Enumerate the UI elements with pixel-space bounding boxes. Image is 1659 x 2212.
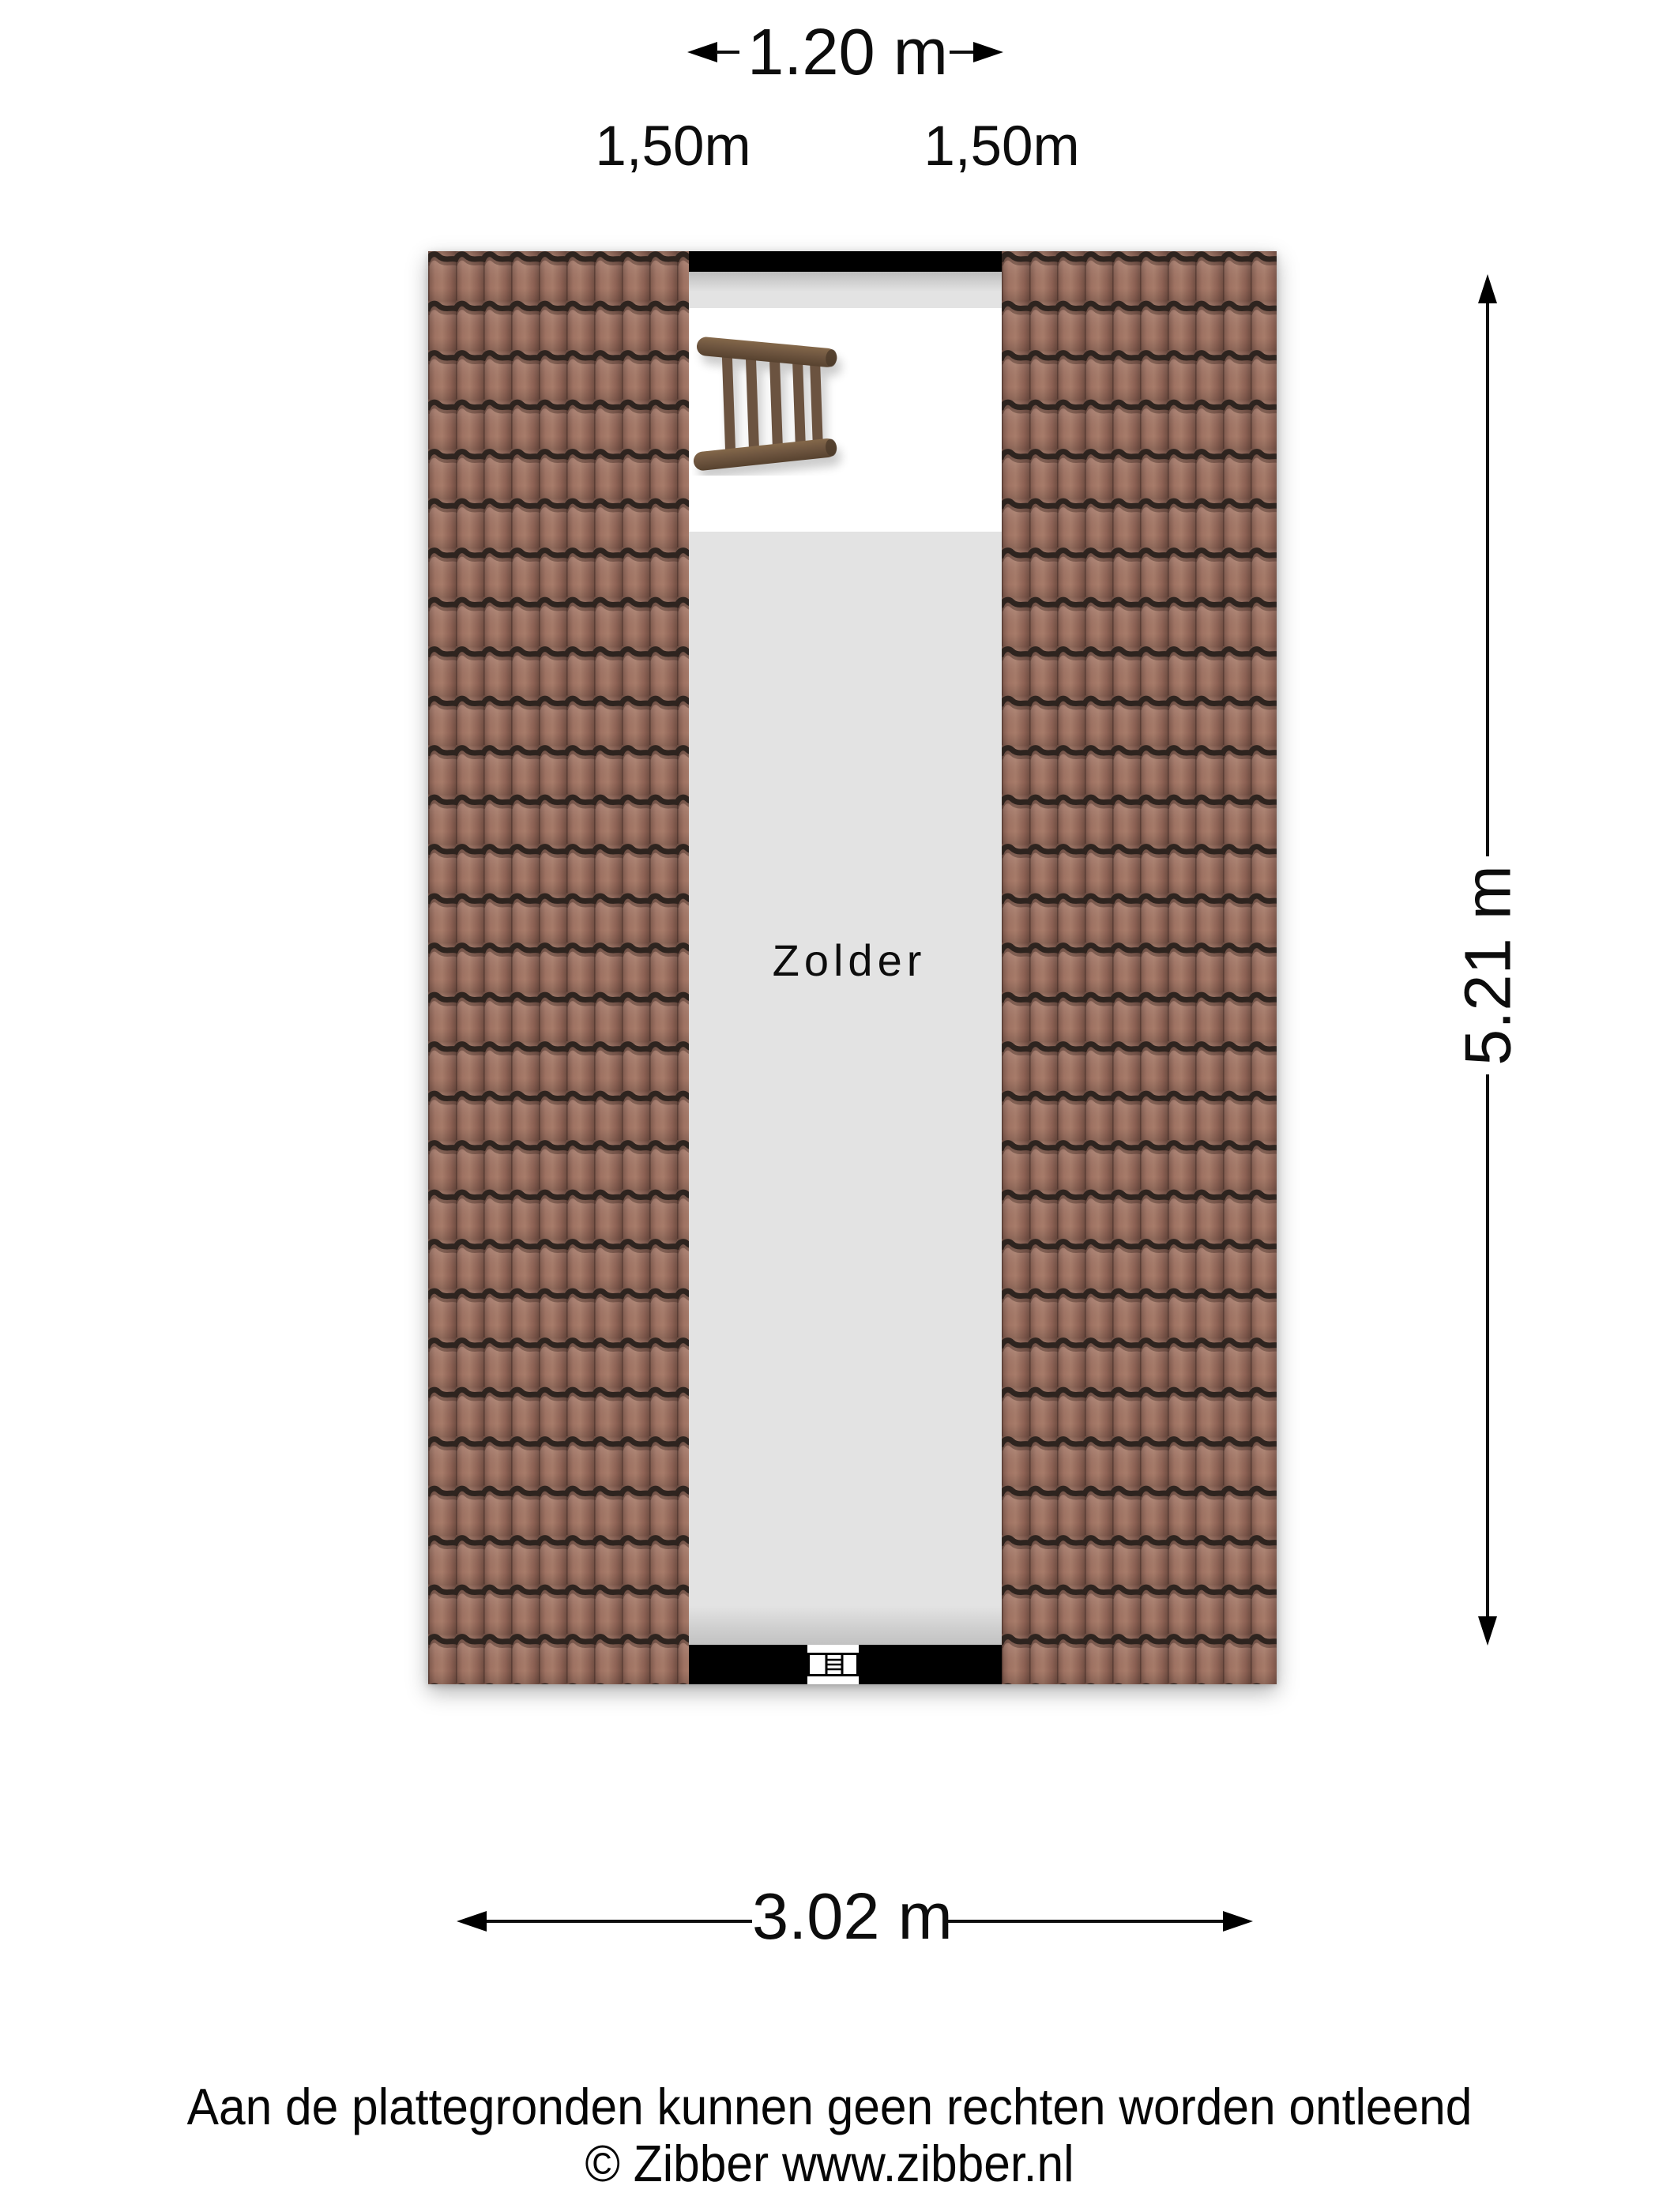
dimension-label-bottom: 3.02 m (752, 1883, 948, 1949)
dimension-arrow-left-icon (457, 1911, 487, 1932)
attic-floor (689, 532, 1002, 1645)
dimension-line (948, 1920, 1223, 1923)
dimension-arrow-right-icon (973, 42, 1003, 62)
dimension-arrow-down-icon (1478, 1616, 1497, 1646)
roof-tiles-right (1002, 251, 1277, 1684)
dimension-label-right: 5.21 m (1455, 865, 1521, 1066)
dimension-arrow-up-icon (1478, 274, 1497, 303)
dimension-arrow-left-icon (687, 42, 717, 62)
floor-shadow-band (689, 272, 1002, 308)
dimension-arrow-right-icon (1223, 1911, 1253, 1932)
dimension-line (716, 51, 739, 54)
headroom-label-left: 1,50m (594, 118, 752, 175)
wall-top (689, 251, 1002, 272)
roof-tiles-left (428, 251, 689, 1684)
dimension-label-top: 1.20 m (743, 19, 953, 85)
dimension-line (487, 1920, 752, 1923)
loft-ladder-icon (692, 318, 850, 476)
dimension-line (1486, 1074, 1489, 1616)
headroom-label-right: 1,50m (923, 118, 1081, 175)
dimension-line (1486, 303, 1489, 856)
attic-hatch-icon (807, 1645, 859, 1684)
floorplan-canvas: Zolder (428, 251, 1277, 1684)
dimension-line (950, 51, 973, 54)
room-label: Zolder (689, 939, 1002, 983)
footer-disclaimer: Aan de plattegronden kunnen geen rechten… (58, 2079, 1601, 2135)
footer-copyright: © Zibber www.zibber.nl (58, 2136, 1601, 2191)
